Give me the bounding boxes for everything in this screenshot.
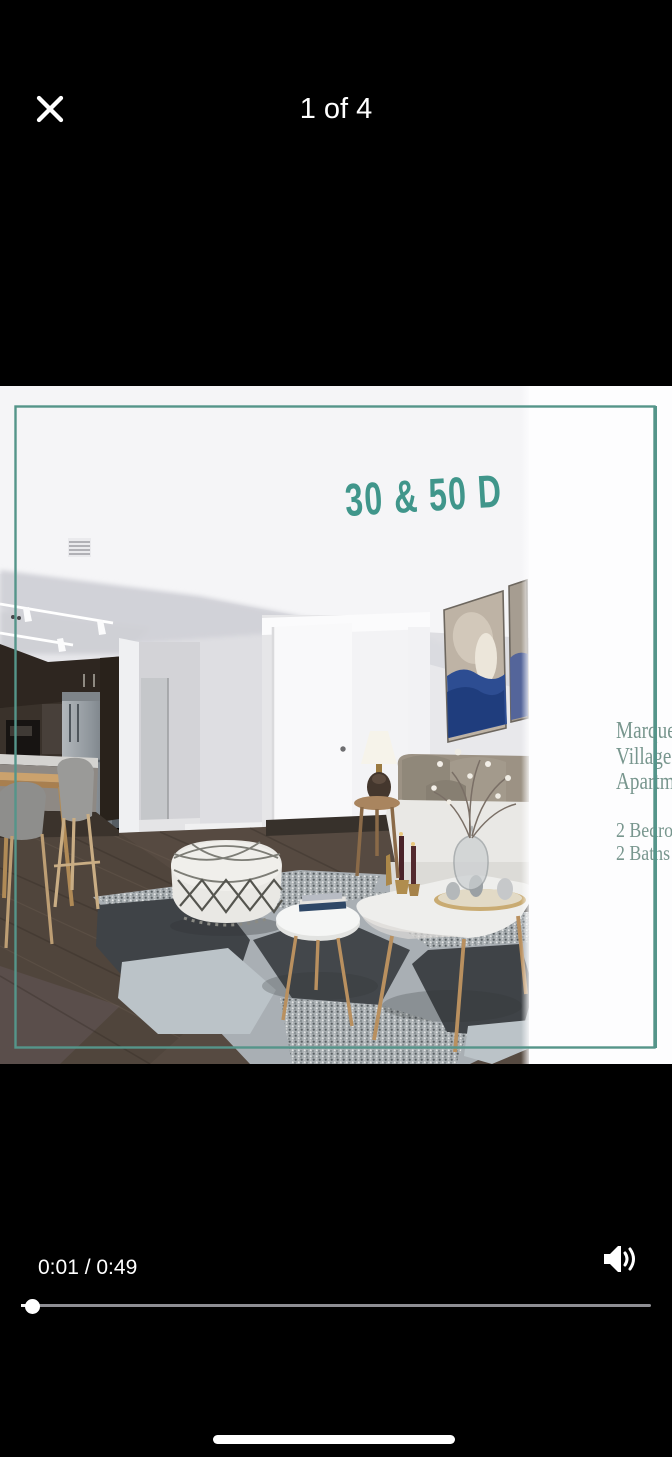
svg-text:30 & 50 D: 30 & 50 D <box>344 466 504 526</box>
